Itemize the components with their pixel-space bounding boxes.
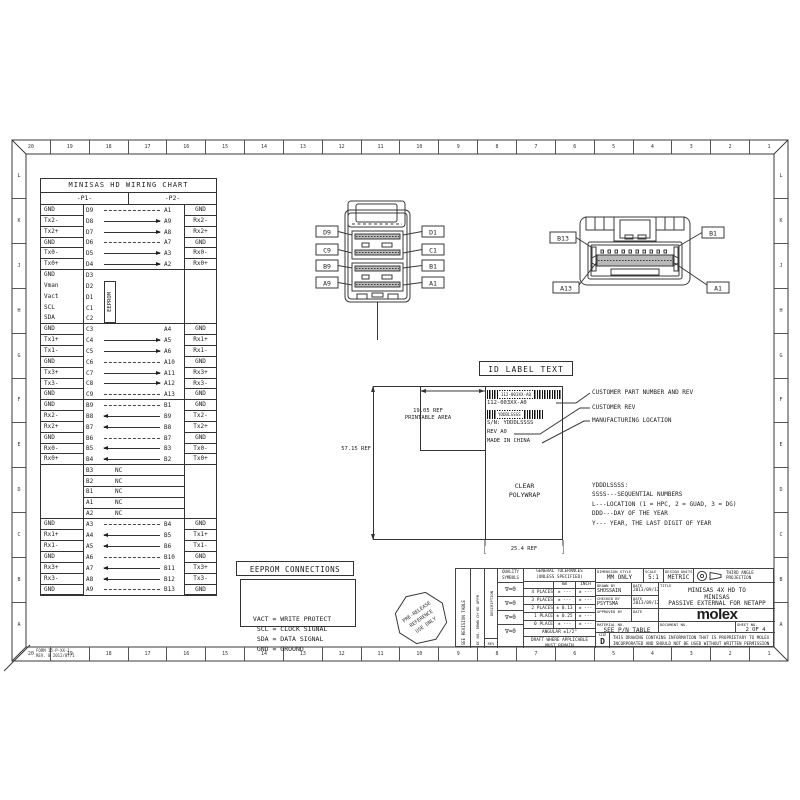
- signal-p2: Rx1-: [184, 346, 216, 357]
- quality-symbol: ∇=0: [498, 583, 523, 597]
- pin-p2: NC: [101, 499, 122, 506]
- signal-p2: GND: [184, 357, 216, 368]
- zone-label: 16: [166, 647, 205, 661]
- wire-line: [104, 253, 160, 254]
- zone-label: J: [12, 243, 26, 288]
- zone-label: 1: [749, 140, 788, 154]
- wiring-row: GND C9 A13 GND: [41, 389, 216, 400]
- signal-p1: GND: [41, 400, 84, 411]
- pin-p2: NC: [101, 467, 122, 474]
- pin-p1: B2: [86, 478, 101, 485]
- pin-p1: B6: [86, 435, 101, 442]
- wire-path: B1 NC: [84, 487, 184, 498]
- pin-callout-d1: D1: [429, 229, 437, 237]
- legend-line: DDD---DAY OF THE YEAR: [592, 509, 737, 519]
- wire-path: C5 A6: [84, 346, 184, 357]
- signal-p1: GND: [41, 389, 84, 400]
- pin-p2: NC: [101, 478, 122, 485]
- signal-p1: GND: [41, 433, 84, 444]
- zone-label: 3: [671, 140, 710, 154]
- signal-p2: Rx2-: [184, 216, 216, 227]
- pin-p2: A9: [163, 218, 182, 225]
- pin-callout-a9: A9: [323, 280, 331, 288]
- signal-p2: [184, 313, 216, 324]
- size-cell: SIZE D: [596, 633, 610, 648]
- revision-strip: SEE REVISION TABLE: [456, 569, 471, 648]
- serial-legend: YDDDLSSSS:SSSS---SEQUENTIAL NUMBERSL---L…: [592, 452, 737, 528]
- zone-label: 17: [128, 140, 167, 154]
- signal-p1: Rx3+: [41, 563, 84, 574]
- zone-band-bottom: 2019181716151413121110987654321: [12, 647, 788, 661]
- pin-p1: B8: [86, 413, 101, 420]
- wire-path: A4 B5: [84, 530, 184, 541]
- wire-path: D5 A3: [84, 248, 184, 259]
- signal-p2: GND: [184, 433, 216, 444]
- wire-line: [104, 329, 160, 330]
- wire-line: [104, 264, 160, 265]
- signal-p2: GND: [184, 238, 216, 249]
- signal-p2: [184, 509, 216, 520]
- signal-p2: Tx0-: [184, 444, 216, 455]
- legend-line: SSSS---SEQUENTIAL NUMBERS: [592, 490, 737, 500]
- wiring-row: GND C6 A10 GND: [41, 357, 216, 368]
- projection-cell: THIRD ANGLE PROJECTION: [694, 569, 775, 583]
- signal-p2: Tx3+: [184, 563, 216, 574]
- wire-path: A7 B11: [84, 563, 184, 574]
- zone-label: 19: [50, 140, 89, 154]
- pin-callout-a1: A1: [429, 280, 437, 288]
- zone-label: B: [12, 557, 26, 602]
- pin-p2: B9: [163, 413, 182, 420]
- molex-logo: molex: [659, 609, 775, 622]
- pin-p2: A5: [163, 337, 182, 344]
- barcode-embedded-text: 112-003XX-A0: [499, 391, 533, 398]
- drawing-title: MINISAS 4X HD TO MINISAS PASSIVE EXTERNA…: [659, 588, 775, 608]
- wire-path: D4 A2: [84, 259, 184, 270]
- zone-label: A: [12, 602, 26, 647]
- wiring-row: A2 NC: [41, 509, 216, 520]
- legend-line: L---LOCATION (1 = HPC, 2 = GUAD, 3 = DG): [592, 500, 737, 510]
- wire-path: C9 A13: [84, 389, 184, 400]
- wire-line: [104, 221, 160, 222]
- signal-p1: Tx3-: [41, 379, 84, 390]
- signal-p1: Tx0+: [41, 259, 84, 270]
- signal-p2: [184, 476, 216, 487]
- polywrap-note: CLEAR POLYWRAP: [486, 482, 563, 500]
- wiring-row: Vact D1: [41, 292, 216, 303]
- wiring-chart-table: MINISAS HD WIRING CHART -P1- -P2- GND D9…: [40, 178, 217, 596]
- p2-body: [580, 217, 690, 285]
- wiring-row: GND D6 A7 GND: [41, 238, 216, 249]
- signal-p2: [184, 465, 216, 476]
- wire-path: C8 A12: [84, 379, 184, 390]
- wire-path: B5 B3: [84, 444, 184, 455]
- zone-label: 7: [516, 647, 555, 661]
- draft-note: DRAFT WHERE APPLICABLE MUST REMAIN WITHI…: [524, 637, 595, 648]
- pin-callout-b13: B13: [557, 235, 569, 243]
- material-cell: MATERIAL NO. SEE P/N TABLE: [596, 622, 659, 633]
- checked-by-cell: CHECKED BY PSYTSMA: [596, 596, 632, 609]
- signal-p1: Tx3+: [41, 368, 84, 379]
- legend-line: YDDDLSSSS:: [592, 481, 737, 491]
- pin-p2: A8: [163, 229, 182, 236]
- wire-line: [104, 373, 160, 374]
- zone-label: L: [12, 154, 26, 198]
- pin-p2: NC: [101, 510, 122, 517]
- wire-path: B9 B1: [84, 400, 184, 411]
- pin-p1: B1: [86, 488, 101, 495]
- wiring-row: Tx2+ D7 A8 Rx2+: [41, 227, 216, 238]
- wire-path: D8 A9: [84, 216, 184, 227]
- pin-p2: B1: [163, 402, 182, 409]
- zone-label: 13: [283, 140, 322, 154]
- signal-p1: Rx2+: [41, 422, 84, 433]
- wire-path: C7 A11: [84, 368, 184, 379]
- wiring-row: Tx1- C5 A6 Rx1-: [41, 346, 216, 357]
- pin-p1: B5: [86, 445, 101, 452]
- pin-p2: B4: [163, 521, 182, 528]
- form-note: FORM 15-P-XX-1 REV. 0 2012/07/1: [36, 649, 75, 658]
- wiring-row: Tx1+ C4 A5 Rx1+: [41, 335, 216, 346]
- pin-p2: B10: [163, 554, 182, 561]
- wire-line: [104, 242, 160, 243]
- drawing-sheet: 2019181716151413121110987654321 20191817…: [0, 0, 800, 800]
- pin-p2: A11: [163, 370, 182, 377]
- wiring-row: Rx1- A5 B6 Tx1-: [41, 541, 216, 552]
- pin-p2: B8: [163, 424, 182, 431]
- wire-line: [104, 589, 160, 590]
- signal-p1: GND: [41, 205, 84, 216]
- eeprom-connections-box: VACT = WRITE PROTECT SCL = CLOCK SIGNAL …: [240, 579, 356, 627]
- id-label-title: ID LABEL TEXT: [479, 361, 573, 376]
- signal-p1: GND: [41, 357, 84, 368]
- pin-p1: C8: [86, 380, 101, 387]
- pin-p1: A9: [86, 586, 101, 593]
- wire-line: [104, 405, 160, 406]
- signal-p2: Tx1-: [184, 541, 216, 552]
- wire-path: A8 B12: [84, 574, 184, 585]
- annotation-mfg-location: MANUFACTURING LOCATION: [592, 417, 671, 424]
- wire-path: C3 A4: [84, 324, 184, 335]
- wire-line: [104, 459, 160, 460]
- wiring-row: GND A9 B13 GND: [41, 585, 216, 596]
- zone-label: 6: [555, 647, 594, 661]
- wire-line: [104, 546, 160, 547]
- approved-by-cell: APPROVED BY: [596, 609, 632, 622]
- pin-p1: C1: [86, 305, 101, 312]
- zone-label: 11: [361, 140, 400, 154]
- p1-header: -P1-: [41, 193, 129, 204]
- pin-p1: A8: [86, 576, 101, 583]
- zone-band-top: 2019181716151413121110987654321: [12, 140, 788, 154]
- tolerances: GENERAL TOLERANCES (UNLESS SPECIFIED) mm…: [524, 569, 596, 648]
- wire-path: A2 NC: [84, 509, 184, 520]
- tolerance-row: 3 PLACES ± --- ± ---: [524, 597, 595, 605]
- signal-p2: [184, 303, 216, 314]
- wire-line: [104, 579, 160, 580]
- wire-path: D6 A7: [84, 238, 184, 249]
- wire-line: [104, 232, 160, 233]
- quality-symbol: ∇=0: [498, 625, 523, 638]
- zone-label: 1: [749, 647, 788, 661]
- wiring-row: Rx0+ B4 B2 Tx0+: [41, 454, 216, 465]
- wiring-row: Rx2+ B7 B8 Tx2+: [41, 422, 216, 433]
- wire-path: C4 A5: [84, 335, 184, 346]
- tolerance-row: 1 PLACE ± 0.25 ± ---: [524, 613, 595, 621]
- wire-line: [104, 557, 160, 558]
- pin-p1: C3: [86, 326, 101, 333]
- pin-p2: A2: [163, 261, 182, 268]
- signal-p2: Tx3-: [184, 574, 216, 585]
- pin-p1: D6: [86, 239, 101, 246]
- wire-line: [104, 448, 160, 449]
- design-units-cell: DESIGN UNITS METRIC: [664, 569, 694, 583]
- pin-p1: A7: [86, 565, 101, 572]
- scale-cell: SCALE 5:1: [644, 569, 664, 583]
- tolerance-row: 4 PLACES ± --- ± ---: [524, 589, 595, 597]
- drawn-date-cell: DATE 2013/09/12: [632, 583, 659, 596]
- wiring-row: GND C3 A4 GND: [41, 324, 216, 335]
- pin-p1: C4: [86, 337, 101, 344]
- signal-p1: Tx2+: [41, 227, 84, 238]
- signal-p1: Rx2-: [41, 411, 84, 422]
- connector-p2-drawing: B13 B1 A13 A1: [545, 205, 740, 305]
- pin-p2: B3: [163, 445, 182, 452]
- zone-label: 2: [710, 647, 749, 661]
- zone-label: L: [774, 154, 788, 198]
- zone-label: 4: [633, 140, 672, 154]
- barcode-serial: YDDDLSSSS: [487, 410, 543, 419]
- signal-p1: [41, 487, 84, 498]
- signal-p2: GND: [184, 585, 216, 596]
- quality-symbol: ∇=0: [498, 611, 523, 625]
- zone-label: 11: [361, 647, 400, 661]
- wire-line: [104, 383, 160, 384]
- wire-line: [104, 340, 160, 341]
- pin-callout-b9: B9: [323, 263, 331, 271]
- pin-p1: B3: [86, 467, 101, 474]
- signal-p1: Tx2-: [41, 216, 84, 227]
- signal-p1: GND: [41, 238, 84, 249]
- signal-p1: [41, 498, 84, 509]
- pin-callout-b1: B1: [429, 263, 437, 271]
- wire-path: D2: [84, 281, 184, 292]
- signal-p1: Rx0-: [41, 444, 84, 455]
- wire-line: [104, 210, 160, 211]
- wire-path: B3 NC: [84, 465, 184, 476]
- signal-p2: Tx2-: [184, 411, 216, 422]
- wiring-rows: GND D9 A1 GND Tx2- D8 A9 Rx: [41, 205, 216, 595]
- wiring-row: Tx3- C8 A12 Rx3-: [41, 379, 216, 390]
- wire-path: A6 B10: [84, 552, 184, 563]
- zone-label: D: [12, 467, 26, 512]
- pin-callout-d9: D9: [323, 229, 331, 237]
- wire-line: [104, 524, 160, 525]
- wire-path: A1 NC: [84, 498, 184, 509]
- wire-path: B2 NC: [84, 476, 184, 487]
- wiring-row: GND A3 B4 GND: [41, 519, 216, 530]
- third-angle-projection-icon: [696, 570, 724, 582]
- pin-p2: A1: [163, 207, 182, 214]
- signal-p1: GND: [41, 519, 84, 530]
- annotation-customer-rev: CUSTOMER REV: [592, 404, 635, 411]
- zone-label: 18: [89, 140, 128, 154]
- signal-p2: Rx2+: [184, 227, 216, 238]
- wire-path: A9 B13: [84, 585, 184, 596]
- zone-label: 12: [322, 140, 361, 154]
- pin-p2: A4: [163, 326, 182, 333]
- zone-label: G: [12, 333, 26, 378]
- signal-p1: Rx0+: [41, 454, 84, 465]
- document-cell: DOCUMENT NO.: [659, 622, 736, 633]
- wiring-row: Tx0- D5 A3 Rx0-: [41, 248, 216, 259]
- pin-p2: NC: [101, 488, 122, 495]
- signal-p2: GND: [184, 400, 216, 411]
- printable-area-dim: 19.05 REF PRINTABLE AREA: [398, 408, 458, 421]
- zone-label: 15: [205, 647, 244, 661]
- pin-p2: B6: [163, 543, 182, 550]
- pin-p2: A12: [163, 380, 182, 387]
- pin-callout-c9: C9: [323, 247, 331, 255]
- eeprom-connection-line: GND = GROUND: [249, 644, 355, 654]
- wiring-chart-header: -P1- -P2-: [41, 193, 216, 205]
- zone-label: K: [774, 198, 788, 243]
- wiring-row: Tx0+ D4 A2 Rx0+: [41, 259, 216, 270]
- pin-p2: B13: [163, 586, 182, 593]
- wiring-row: SCL C1: [41, 303, 216, 314]
- wire-line: [104, 535, 160, 536]
- zone-label: 14: [244, 140, 283, 154]
- signal-p1: GND: [41, 270, 84, 281]
- zone-label: C: [12, 512, 26, 557]
- wire-line: [104, 568, 160, 569]
- signal-p2: GND: [184, 205, 216, 216]
- pin-callout-c1: C1: [429, 247, 437, 255]
- signal-p2: Rx3+: [184, 368, 216, 379]
- signal-p1: [41, 465, 84, 476]
- pin-p1: D9: [86, 207, 101, 214]
- wire-path: A5 B6: [84, 541, 184, 552]
- wiring-row: B1 NC: [41, 487, 216, 498]
- signal-p1: Rx1+: [41, 530, 84, 541]
- wire-path: A3 B4: [84, 519, 184, 530]
- pin-p1: C2: [86, 315, 101, 322]
- drawn-by-cell: DRAWN BY SHOSSAIN: [596, 583, 632, 596]
- signal-p2: [184, 270, 216, 281]
- signal-p2: Rx1+: [184, 335, 216, 346]
- wire-path: C2: [84, 313, 184, 324]
- annotation-part-number: CUSTOMER PART NUMBER AND REV: [592, 389, 693, 396]
- signal-p1: Vact: [41, 292, 84, 303]
- serial-number-text: S/N: YDDDLSSSS: [487, 419, 561, 428]
- pin-p1: D2: [86, 283, 101, 290]
- approved-date-cell: DATE: [632, 609, 659, 622]
- wiring-row: Tx2- D8 A9 Rx2-: [41, 216, 216, 227]
- zone-label: 20: [12, 140, 50, 154]
- eeprom-box-label: EEPROM: [107, 292, 113, 312]
- wire-line: [104, 438, 160, 439]
- pin-p1: C7: [86, 370, 101, 377]
- signal-p2: GND: [184, 519, 216, 530]
- signal-p2: GND: [184, 324, 216, 335]
- wiring-row: SDA C2: [41, 313, 216, 324]
- zone-label: E: [12, 422, 26, 467]
- zone-label: 10: [399, 140, 438, 154]
- rev-text: REV A0: [487, 428, 561, 437]
- p1-body: [345, 201, 410, 340]
- wire-line: [104, 351, 160, 352]
- zone-label: 8: [477, 140, 516, 154]
- zone-label: H: [774, 288, 788, 333]
- zone-label: 5: [594, 140, 633, 154]
- signal-p1: [41, 509, 84, 520]
- wiring-row: B2 NC: [41, 476, 216, 487]
- revision-columns: EC NO. DRWN CH'KD APPR: [471, 569, 485, 648]
- made-in-text: MADE IN CHINA: [487, 437, 561, 446]
- wiring-row: GND A6 B10 GND: [41, 552, 216, 563]
- pin-p1: B7: [86, 424, 101, 431]
- wiring-row: A1 NC: [41, 498, 216, 509]
- wiring-row: GND B6 B7 GND: [41, 433, 216, 444]
- signal-p2: GND: [184, 389, 216, 400]
- zone-label: 10: [399, 647, 438, 661]
- pin-p2: B11: [163, 565, 182, 572]
- pin-callout-a1: A1: [714, 285, 722, 293]
- pin-p1: C5: [86, 348, 101, 355]
- pin-p1: D3: [86, 272, 101, 279]
- signal-p2: Rx0+: [184, 259, 216, 270]
- signal-p1: [41, 476, 84, 487]
- wire-path: B4 B2: [84, 454, 184, 465]
- zone-label: F: [12, 378, 26, 423]
- pin-callout-b1: B1: [709, 230, 717, 238]
- wire-path: B7 B8: [84, 422, 184, 433]
- title-cell: TITLE MINISAS 4X HD TO MINISAS PASSIVE E…: [659, 583, 775, 609]
- signal-p2: Tx1+: [184, 530, 216, 541]
- description-strip: DESCRIPTION: [485, 569, 498, 638]
- signal-p1: GND: [41, 552, 84, 563]
- zone-label: B: [774, 557, 788, 602]
- pin-p1: C9: [86, 391, 101, 398]
- pin-p2: A7: [163, 239, 182, 246]
- zone-label: 5: [594, 647, 633, 661]
- pin-p1: A4: [86, 532, 101, 539]
- signal-p2: Tx0+: [184, 454, 216, 465]
- zone-label: 8: [477, 647, 516, 661]
- pin-p2: A10: [163, 359, 182, 366]
- zone-label: 6: [555, 140, 594, 154]
- signal-p1: GND: [41, 324, 84, 335]
- pin-p1: A3: [86, 521, 101, 528]
- pin-p1: D1: [86, 294, 101, 301]
- pin-p2: A3: [163, 250, 182, 257]
- width-dim: 25.4 REF: [485, 546, 563, 553]
- zone-label: A: [774, 602, 788, 647]
- pin-p2: B5: [163, 532, 182, 539]
- pin-callout-a13: A13: [560, 285, 572, 293]
- signal-p2: Tx2+: [184, 422, 216, 433]
- signal-p1: Tx1+: [41, 335, 84, 346]
- tolerance-row: 2 PLACES ± 0.13 ± ---: [524, 605, 595, 613]
- pre-release-stamp: PRE-RELEASE REFERENCE USE ONLY: [392, 589, 450, 647]
- signal-p1: Tx1-: [41, 346, 84, 357]
- signal-p1: SCL: [41, 303, 84, 314]
- pin-p1: D5: [86, 250, 101, 257]
- wire-path: D3: [84, 270, 184, 281]
- pin-p2: A6: [163, 348, 182, 355]
- wire-line: [104, 394, 160, 395]
- zone-label: 7: [516, 140, 555, 154]
